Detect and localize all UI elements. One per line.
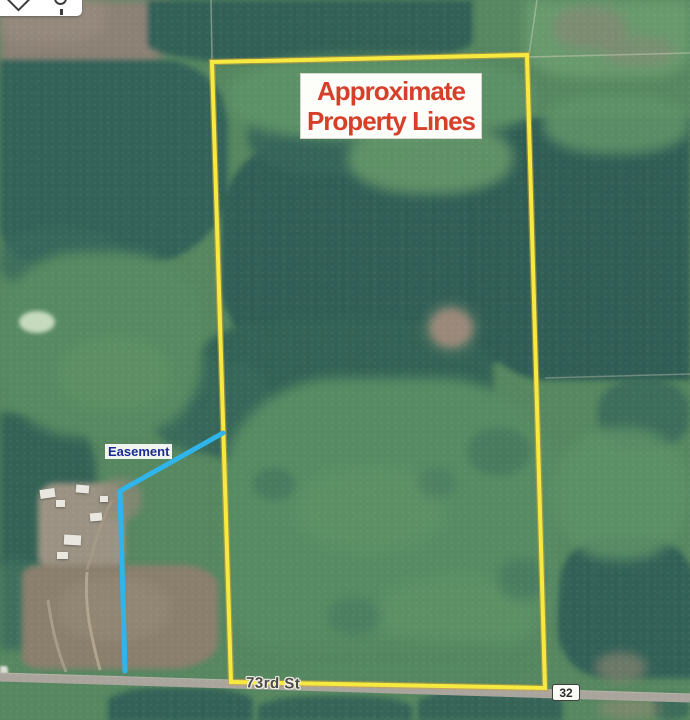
easement-label: Easement	[105, 444, 172, 459]
diamond-tool-icon[interactable]	[8, 0, 32, 14]
diamond-shape	[6, 0, 30, 12]
satellite-map[interactable]: Approximate Property Lines Easement 73rd…	[0, 0, 690, 720]
property-lines-title: Approximate Property Lines	[300, 73, 482, 139]
route-number: 32	[559, 686, 572, 700]
property-boundary-halo	[212, 55, 545, 688]
easement-line	[120, 433, 223, 671]
pin-stem	[60, 9, 63, 15]
title-line-1: Approximate	[317, 76, 465, 106]
title-line-2: Property Lines	[307, 106, 475, 136]
map-toolbar	[0, 0, 82, 16]
route-shield-badge: 32	[552, 684, 580, 701]
property-boundary-line	[212, 55, 545, 688]
road-name-label: 73rd St	[246, 674, 301, 692]
pin-tool-icon[interactable]	[50, 0, 74, 14]
pin-circle	[54, 0, 67, 5]
